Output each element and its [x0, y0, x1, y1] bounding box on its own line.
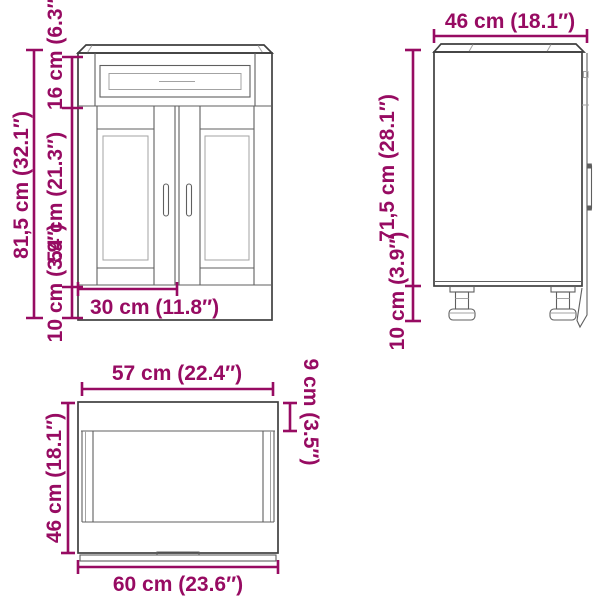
- front-view: [78, 45, 272, 320]
- label-top-depth: 46 cm (18.1″): [43, 413, 66, 543]
- dim-inner-width: 57 cm (22.4″): [82, 362, 273, 396]
- left-door-handle: [164, 184, 169, 216]
- dim-back-panel-depth: 9 cm (3.5″): [283, 359, 322, 466]
- dim-outer-width: 60 cm (23.6″): [78, 560, 278, 596]
- top-view-dimensions: 57 cm (22.4″) 9 cm (3.5″) 46 cm (18.1″) …: [43, 359, 322, 596]
- dim-leg-height: 10 cm (3.9″): [386, 232, 421, 351]
- label-depth: 46 cm (18.1″): [445, 10, 575, 33]
- right-door-handle: [187, 184, 192, 216]
- label-inner-width: 57 cm (22.4″): [112, 362, 242, 385]
- top-view: [78, 402, 278, 561]
- dimension-diagram-page: 81,5 cm (32.1″) 16 cm (6.3″) 54 cm (21.3…: [0, 0, 600, 600]
- dim-door-width: 30 cm (11.8″): [78, 282, 219, 319]
- right-leg: [550, 287, 576, 321]
- dim-top-depth: 46 cm (18.1″): [43, 403, 75, 553]
- top-view-outline: [78, 402, 278, 553]
- label-body-height: 71,5 cm (28.1″): [376, 94, 399, 242]
- left-door: [97, 106, 175, 285]
- label-outer-width: 60 cm (23.6″): [113, 573, 243, 596]
- right-door: [179, 106, 254, 285]
- label-base-height: 10 cm (3.9″): [44, 224, 67, 343]
- drawer-front: [78, 53, 272, 106]
- label-door-width: 30 cm (11.8″): [90, 296, 219, 319]
- right-side-wall: [263, 431, 274, 522]
- label-total-height: 81,5 cm (32.1″): [10, 111, 33, 259]
- label-drawer-height: 16 cm (6.3″): [44, 0, 67, 110]
- left-leg: [449, 287, 475, 321]
- cabinet-top-edge: [78, 45, 272, 53]
- label-back-panel-depth: 9 cm (3.5″): [299, 359, 322, 466]
- dim-total-height: 81,5 cm (32.1″): [10, 50, 43, 318]
- side-panel: [434, 52, 582, 286]
- left-side-wall: [82, 431, 93, 522]
- side-top-edge: [434, 44, 584, 52]
- label-leg-height: 10 cm (3.9″): [386, 232, 409, 351]
- side-view: [434, 44, 592, 327]
- side-door-handle: [587, 164, 592, 210]
- dimension-diagram: 81,5 cm (32.1″) 16 cm (6.3″) 54 cm (21.3…: [0, 0, 600, 600]
- dim-depth: 46 cm (18.1″): [434, 10, 587, 43]
- side-view-dimensions: 46 cm (18.1″) 71,5 cm (28.1″) 10 cm (3.9…: [376, 10, 587, 350]
